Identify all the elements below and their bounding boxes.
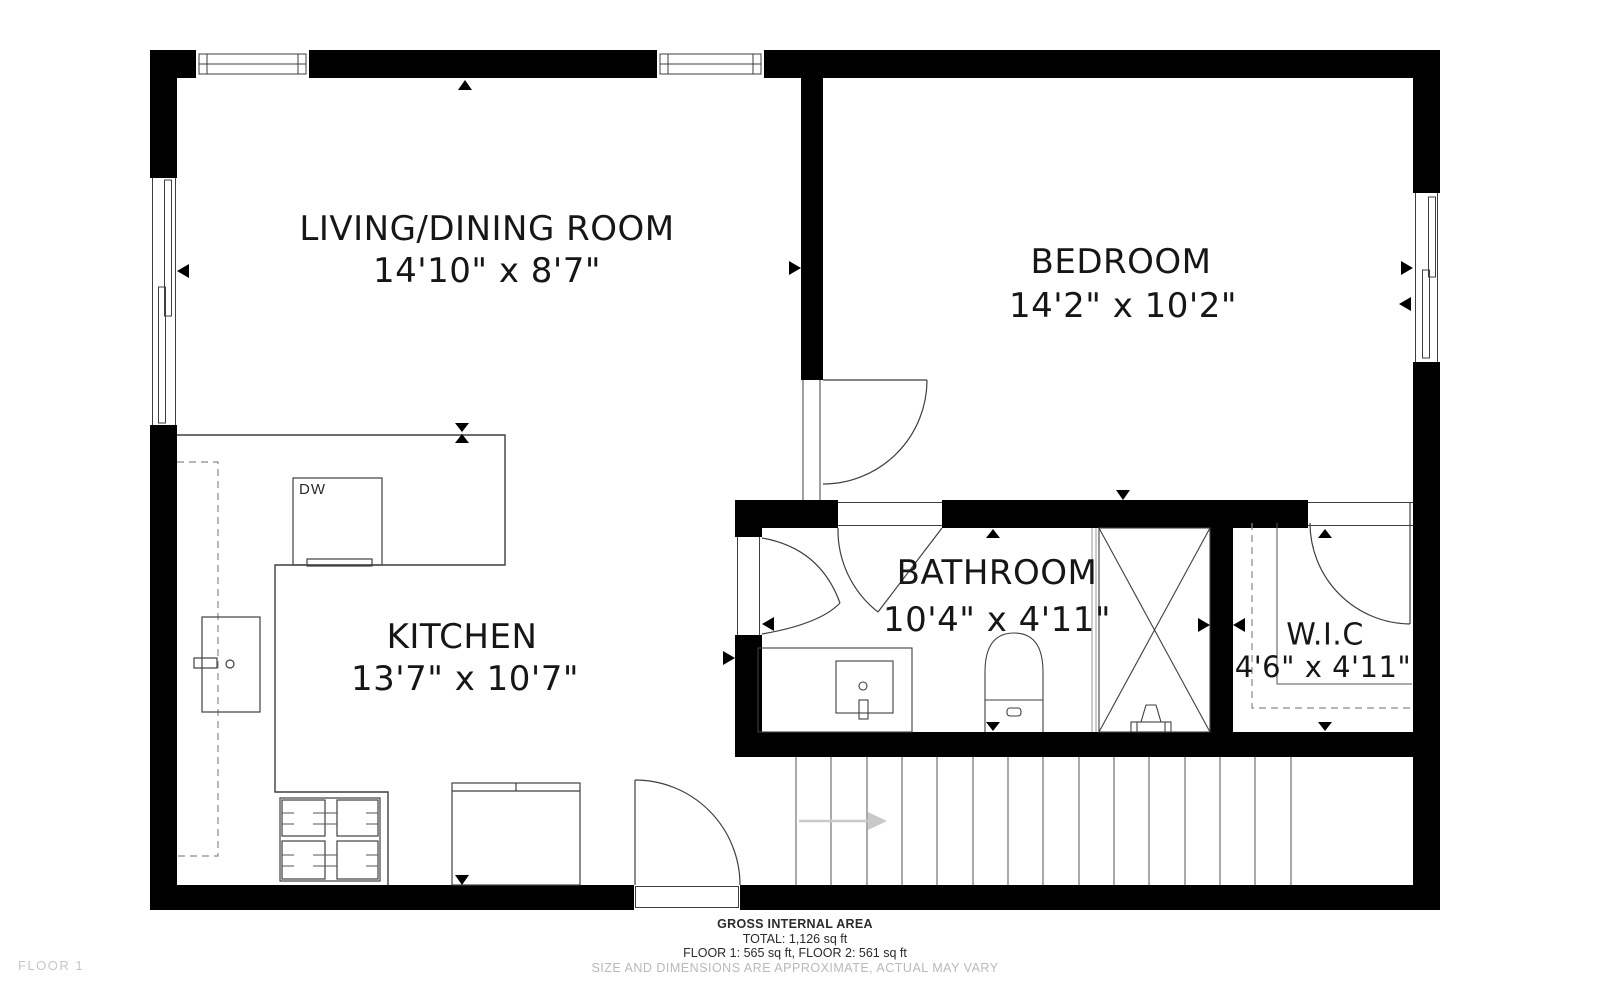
floor-areas-text: FLOOR 1: 565 sq ft, FLOOR 2: 561 sq ft <box>195 946 1395 961</box>
bedroom-dimensions: 14'2" x 10'2" <box>1009 286 1237 326</box>
wall-openings <box>150 50 1440 910</box>
walls <box>150 50 1440 910</box>
shower-head-icon <box>1131 705 1171 732</box>
floor-number-label: FLOOR 1 <box>18 958 84 973</box>
wic-dimensions: 4'6" x 4'11" <box>1235 650 1411 684</box>
bedroom-door <box>823 380 927 484</box>
entry-door <box>635 780 740 885</box>
disclaimer-text: SIZE AND DIMENSIONS ARE APPROXIMATE, ACT… <box>195 961 1395 976</box>
gross-internal-area-title: GROSS INTERNAL AREA <box>195 917 1395 932</box>
kitchen-sink-unit <box>194 617 260 712</box>
floorplan-drawing <box>0 0 1600 999</box>
floorplan-page: LIVING/DINING ROOM 14'10" x 8'7" BEDROOM… <box>0 0 1600 999</box>
living-dining-room-label: LIVING/DINING ROOM <box>299 209 674 249</box>
stove <box>280 798 380 881</box>
bedroom-label: BEDROOM <box>1031 242 1212 282</box>
toilet <box>985 633 1043 732</box>
kitchen-cabinet <box>452 783 580 885</box>
footer-area-summary: GROSS INTERNAL AREA TOTAL: 1,126 sq ft F… <box>195 917 1395 975</box>
bathroom-vanity <box>758 648 912 732</box>
kitchen-dimensions: 13'7" x 10'7" <box>351 659 579 699</box>
total-area-text: TOTAL: 1,126 sq ft <box>195 932 1395 947</box>
wic-label: W.I.C <box>1286 618 1364 653</box>
dishwasher-label: DW <box>299 481 326 498</box>
living-dining-room-dimensions: 14'10" x 8'7" <box>373 251 601 291</box>
kitchen-counter-dashed <box>177 462 218 856</box>
kitchen-label: KITCHEN <box>387 617 538 657</box>
stairs-direction-arrow-icon <box>799 812 887 830</box>
bathroom-dimensions: 10'4" x 4'11" <box>883 600 1111 640</box>
bathroom-label: BATHROOM <box>897 553 1098 593</box>
dimension-markers <box>177 80 1413 885</box>
